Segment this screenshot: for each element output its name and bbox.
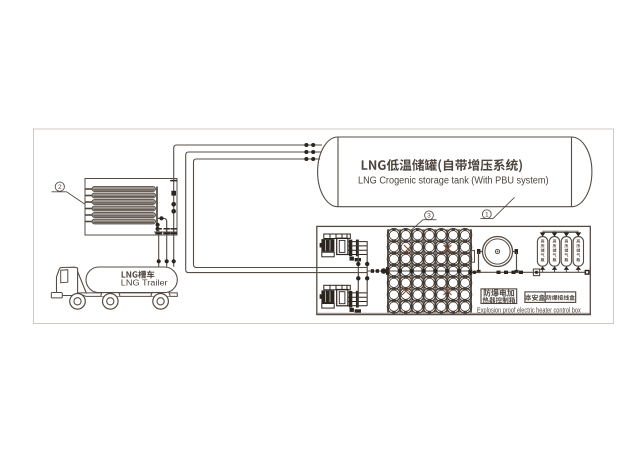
svg-text:Explosion proof electric heate: Explosion proof electric heater control … [477,306,581,315]
svg-text:2: 2 [58,184,62,191]
svg-text:LNG Crogenic storage tank (Wit: LNG Crogenic storage tank (With PBU syst… [358,176,549,187]
svg-text:3: 3 [427,213,431,220]
svg-text:1: 1 [485,212,489,219]
svg-text:LNG Trailer: LNG Trailer [121,277,168,287]
